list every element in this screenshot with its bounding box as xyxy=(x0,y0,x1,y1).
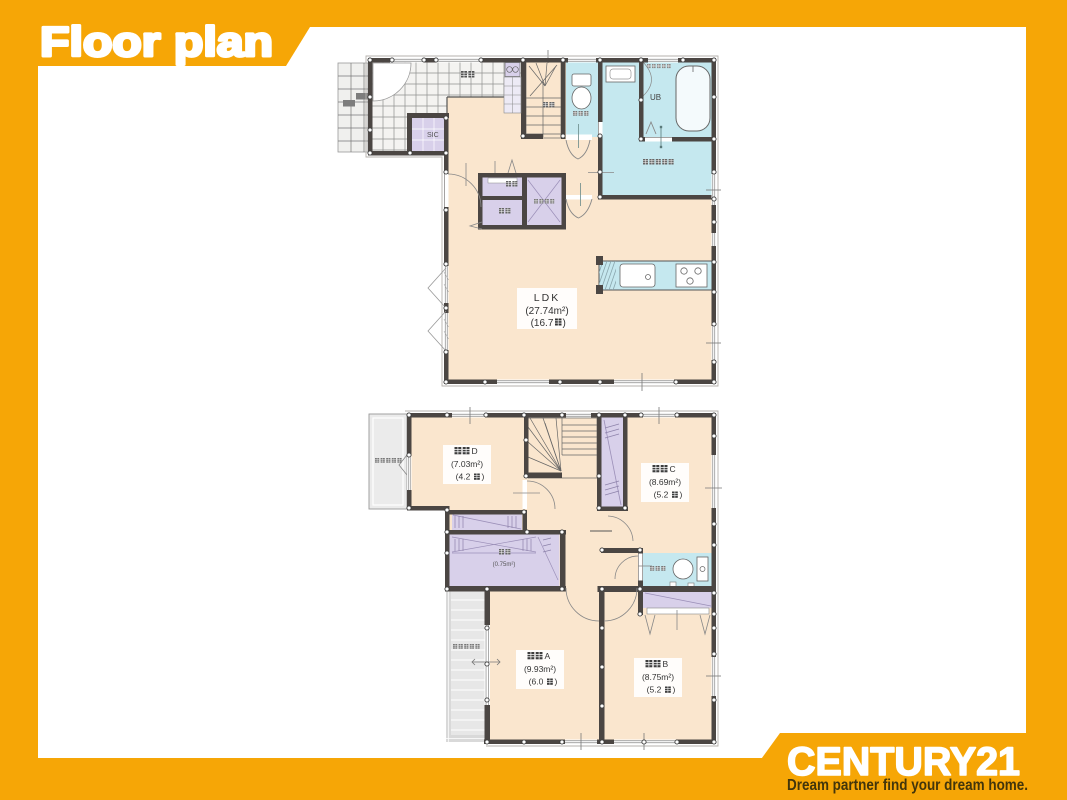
svg-text:(7.03m²): (7.03m²) xyxy=(451,459,483,469)
svg-text:B: B xyxy=(663,659,669,669)
svg-text:): ) xyxy=(555,677,558,687)
svg-text:): ) xyxy=(680,490,683,500)
svg-text:(6.0: (6.0 xyxy=(529,677,544,687)
svg-text:Dream partner find your dream: Dream partner find your dream home. xyxy=(787,777,1028,794)
svg-text:): ) xyxy=(482,472,485,482)
svg-text:): ) xyxy=(673,685,676,695)
svg-text:UB: UB xyxy=(650,93,661,102)
svg-text:Floor plan: Floor plan xyxy=(40,18,273,65)
svg-text:(9.93m²): (9.93m²) xyxy=(524,664,556,674)
svg-text:(4.2: (4.2 xyxy=(456,472,471,482)
svg-text:A: A xyxy=(545,651,551,661)
svg-text:(5.2: (5.2 xyxy=(654,490,669,500)
svg-text:(8.69m²): (8.69m²) xyxy=(649,477,681,487)
svg-text:(5.2: (5.2 xyxy=(647,685,662,695)
svg-text:C: C xyxy=(670,464,676,474)
svg-text:LDK: LDK xyxy=(534,292,560,304)
svg-text:D: D xyxy=(472,446,478,456)
svg-text:(0.75m²): (0.75m²) xyxy=(493,562,516,568)
svg-text:(27.74m²): (27.74m²) xyxy=(525,306,568,317)
svg-text:SIC: SIC xyxy=(427,132,439,139)
svg-text:): ) xyxy=(563,318,566,329)
svg-text:(8.75m²): (8.75m²) xyxy=(642,672,674,682)
svg-text:(16.7: (16.7 xyxy=(531,318,554,329)
